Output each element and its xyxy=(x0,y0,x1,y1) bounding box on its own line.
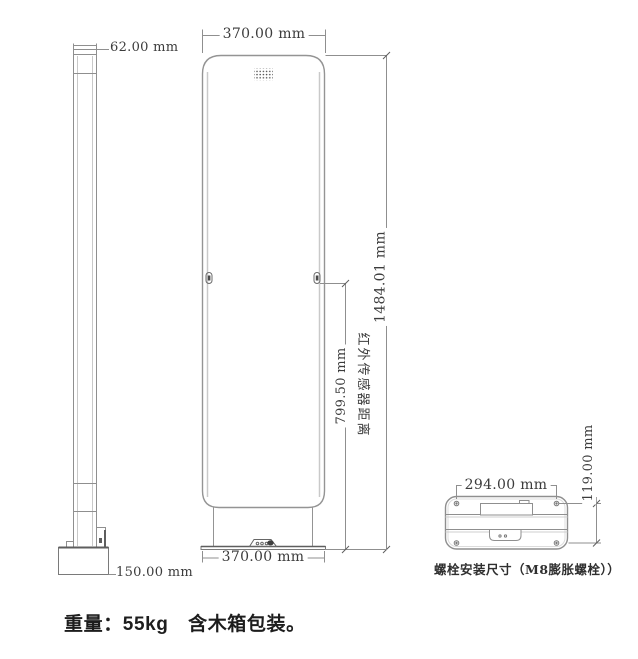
bolt-installation-caption: 螺栓安装尺寸（M8膨胀螺栓）） xyxy=(434,563,620,576)
side-base-outline xyxy=(59,548,109,575)
front-view xyxy=(201,56,326,550)
side-view-dimensions xyxy=(74,44,117,575)
front-view-dimensions xyxy=(203,30,391,563)
speaker-grille xyxy=(254,69,273,81)
side-bracket-pin xyxy=(99,538,102,543)
dim-front-top-width-label: 370.00 mm xyxy=(220,27,309,42)
cable-connector xyxy=(250,540,277,547)
dim-bolt-spacing-depth-label: 119.00 mm xyxy=(582,422,596,505)
base-detail-dimensions xyxy=(457,486,602,547)
weight-note: 重量：55kg 含木箱包装。 xyxy=(64,615,306,635)
dim-side-base-width-label: 150.00 mm xyxy=(116,566,193,580)
ir-sensor-distance-label: 红外传感器距离 xyxy=(355,332,369,437)
base-top-cutout xyxy=(481,504,533,516)
base-detail-view xyxy=(446,497,568,550)
side-column-outline xyxy=(74,46,97,548)
dim-side-width-label: 62.00 mm xyxy=(110,41,178,55)
dim-bolt-spacing-width-label: 294.00 mm xyxy=(462,478,551,493)
dim-front-bottom-width-label: 370.00 mm xyxy=(219,550,308,565)
technical-drawing-page: 62.00 mm 370.00 mm 1484.01 mm 799.50 mm … xyxy=(0,0,638,659)
side-view xyxy=(59,46,109,575)
technical-drawing-canvas xyxy=(0,0,638,659)
dim-ir-sensor-height-label: 799.50 mm xyxy=(335,345,349,428)
front-panel-outline xyxy=(203,56,325,508)
dim-front-height-label: 1484.01 mm xyxy=(374,228,389,326)
